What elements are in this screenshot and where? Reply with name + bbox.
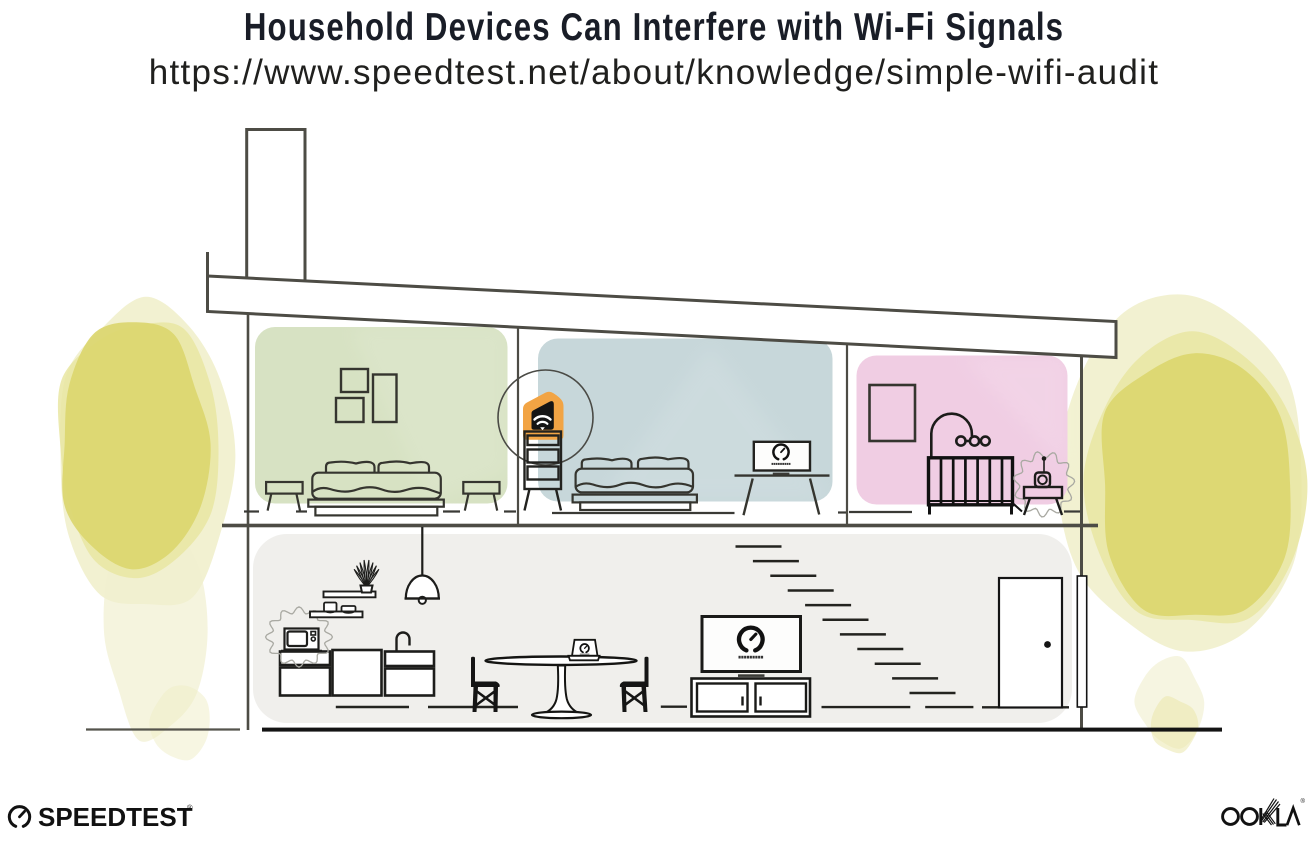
svg-text:SPEEDTEST: SPEEDTEST [38, 802, 193, 832]
svg-text:®: ® [1301, 798, 1306, 805]
svg-text:®: ® [187, 803, 193, 812]
